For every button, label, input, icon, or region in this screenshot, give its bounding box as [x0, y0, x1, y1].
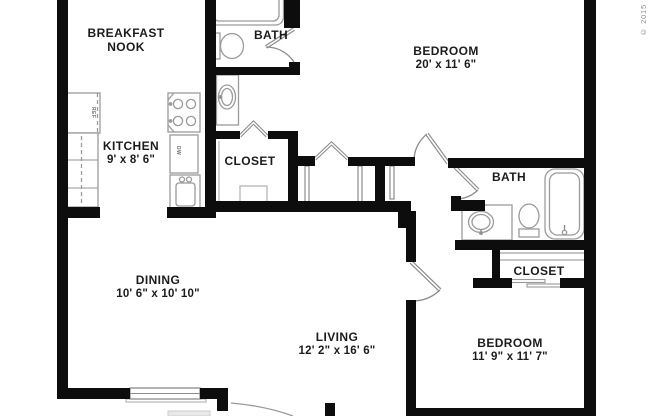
room-name: CLOSET: [224, 154, 275, 168]
porch-step: [168, 411, 210, 416]
room-label-breakfast-nook: BREAKFAST NOOK: [88, 26, 165, 54]
room-label-closet-hall: CLOSET: [224, 154, 275, 168]
bath-top-fixtures: [209, 0, 284, 125]
room-label-bedroom-bottom: BEDROOM 11' 9" x 11' 7": [472, 336, 548, 364]
room-name: BEDROOM: [413, 44, 478, 58]
refrigerator-label: REF: [90, 107, 96, 118]
toilet-bowl: [519, 204, 539, 228]
room-label-bath-right: BATH: [492, 170, 526, 184]
room-name: DINING: [116, 273, 200, 287]
front-door-arc: [231, 403, 293, 416]
kitchen-sink-basin: [176, 183, 195, 206]
room-name: BREAKFAST: [88, 26, 165, 40]
toilet-bowl: [221, 34, 244, 59]
bifold-door: [315, 144, 348, 160]
room-name: KITCHEN: [103, 139, 159, 153]
room-name: BATH: [254, 28, 288, 42]
room-dims: 10' 6" x 10' 10": [116, 287, 200, 301]
room-name: NOOK: [88, 40, 165, 54]
room-label-dining: DINING 10' 6" x 10' 10": [116, 273, 200, 301]
room-dims: 9' x 8' 6": [103, 153, 159, 167]
room-label-bath-top: BATH: [254, 28, 288, 42]
toilet-tank: [519, 229, 539, 237]
floor-plan: BREAKFAST NOOK BATH BEDROOM 20' x 11' 6"…: [0, 0, 652, 416]
room-label-living: LIVING 12' 2" x 16' 6": [299, 330, 376, 358]
room-name: LIVING: [299, 330, 376, 344]
room-name: BEDROOM: [472, 336, 548, 350]
room-dims: 20' x 11' 6": [413, 58, 478, 72]
room-name: BATH: [492, 170, 526, 184]
room-name: CLOSET: [513, 264, 564, 278]
closet-shelf: [240, 186, 267, 203]
room-dims: 12' 2" x 16' 6": [299, 344, 376, 358]
copyright-watermark: © 2015: [639, 4, 648, 37]
dishwasher-label: DW: [175, 146, 181, 155]
stove: [168, 93, 200, 132]
room-label-closet-bedroom: CLOSET: [513, 264, 564, 278]
sliding-closet-door: [505, 280, 567, 288]
room-dims: 11' 9" x 11' 7": [472, 350, 548, 364]
bifold-door: [240, 123, 267, 137]
room-label-bedroom-top: BEDROOM 20' x 11' 6": [413, 44, 478, 72]
room-label-kitchen: KITCHEN 9' x 8' 6": [103, 139, 159, 167]
